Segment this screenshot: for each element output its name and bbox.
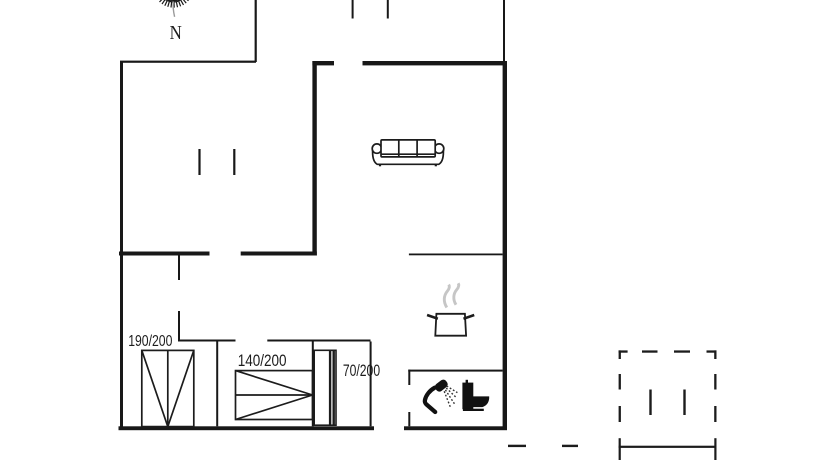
svg-text:70/200: 70/200: [343, 362, 380, 380]
svg-text:N: N: [170, 23, 182, 44]
svg-text:140/200: 140/200: [238, 352, 287, 370]
svg-text:190/200: 190/200: [128, 333, 172, 350]
